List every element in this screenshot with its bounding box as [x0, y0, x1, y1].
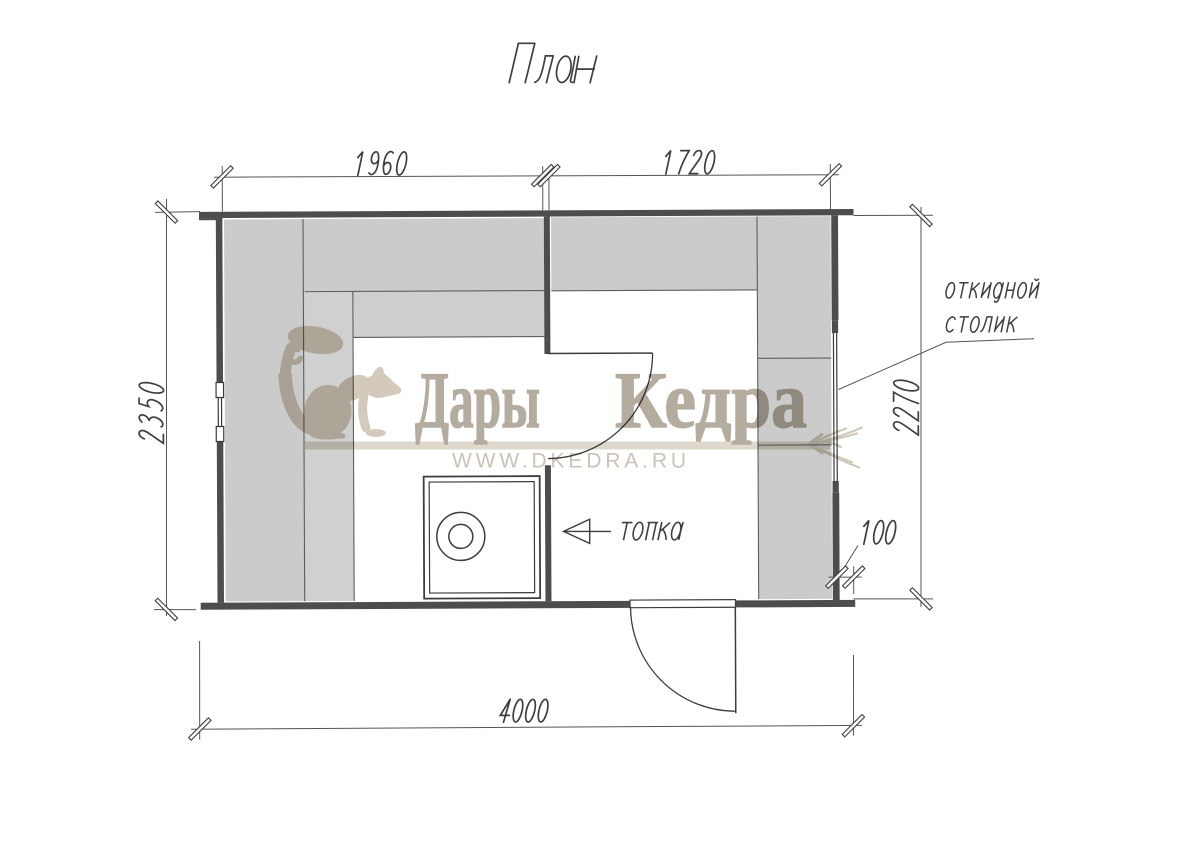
svg-text:Кедра: Кедра: [615, 357, 807, 445]
svg-text:Дары: Дары: [415, 357, 540, 445]
svg-text:WWW.DKEDRA.RU: WWW.DKEDRA.RU: [452, 450, 686, 473]
